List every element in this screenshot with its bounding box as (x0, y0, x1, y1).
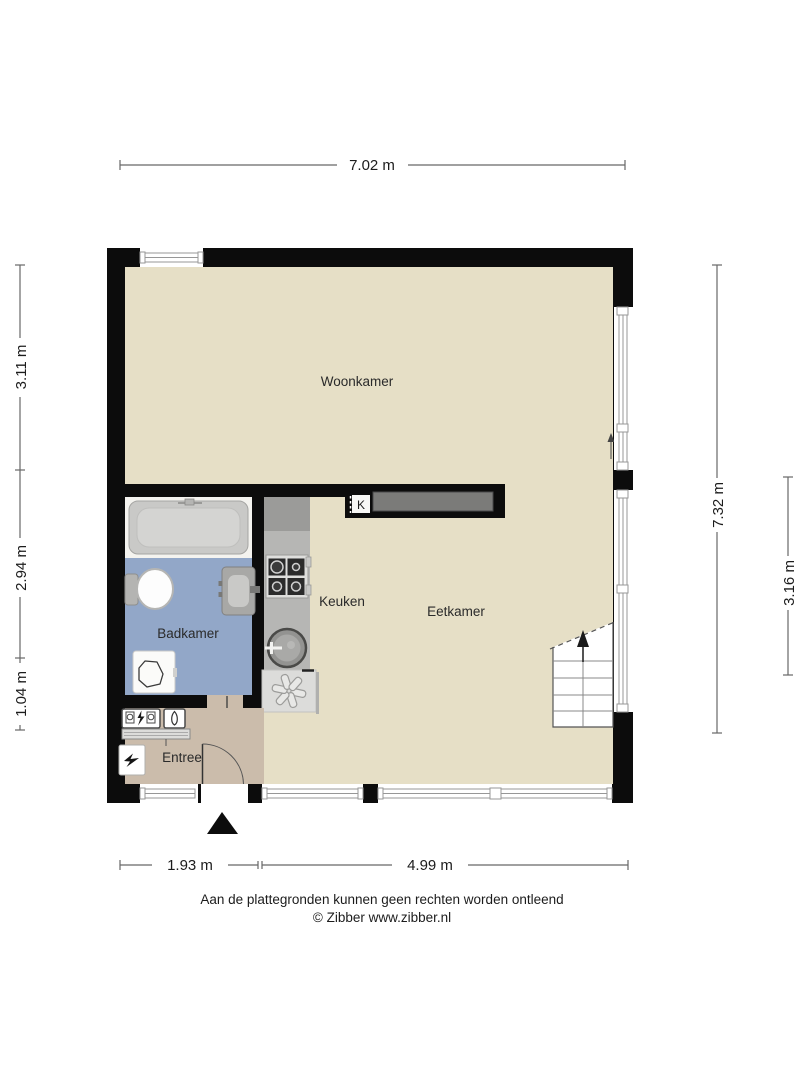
entree-room: Entree (119, 708, 264, 784)
dimension-bottom-label-2: 4.99 m (407, 857, 453, 874)
entrance-triangle-icon (207, 812, 238, 834)
electric-meter-icon (122, 709, 160, 728)
dimension-top-label: 7.02 m (349, 157, 395, 174)
window-icon-bottom-left (140, 784, 198, 803)
washbasin-icon (219, 567, 261, 615)
entree-label: Entree (162, 750, 202, 765)
dimension-bottom: 1.93 m 4.99 m (120, 857, 628, 874)
washing-machine-icon (133, 651, 177, 693)
dimension-right-label-1: 7.32 m (710, 482, 727, 528)
woonkamer-label: Woonkamer (321, 374, 394, 389)
doorbell-icon (119, 745, 145, 775)
floorplan-canvas: 7.02 m 3.11 m 2.94 m 1.04 m 7.32 m 3.16 … (0, 0, 809, 1080)
keuken-label: Keuken (319, 594, 365, 609)
dimension-right-label-2: 3.16 m (781, 560, 798, 606)
gas-meter-icon (164, 709, 185, 728)
window-icon-top (140, 248, 203, 267)
footer-copyright: © Zibber www.zibber.nl (313, 910, 451, 925)
toilet-icon (125, 569, 173, 609)
boiler-vent-icon (262, 670, 319, 714)
window-icon-bottom-middle (262, 784, 363, 803)
closet-marker-label: K (357, 498, 365, 512)
window-icon-bottom-right (378, 784, 612, 803)
badkamer-label: Badkamer (157, 626, 219, 641)
dimension-left-label-3: 1.04 m (13, 671, 30, 717)
stove-icon (266, 555, 311, 598)
dimension-bottom-label-1: 1.93 m (167, 857, 213, 874)
window-icon-right-lower (614, 490, 633, 712)
floorplan-page: 7.02 m 3.11 m 2.94 m 1.04 m 7.32 m 3.16 … (0, 0, 809, 1080)
front-door-opening (201, 784, 248, 803)
wall-counter-icon (373, 492, 493, 511)
eetkamer-label: Eetkamer (427, 604, 485, 619)
dimension-top: 7.02 m (120, 157, 625, 174)
dimension-left-label-1: 3.11 m (13, 345, 30, 390)
dimension-left-label-2: 2.94 m (13, 545, 30, 591)
dimension-left: 3.11 m 2.94 m 1.04 m (13, 265, 30, 730)
footer-disclaimer: Aan de plattegronden kunnen geen rechten… (200, 892, 563, 907)
window-icon-right-upper (614, 307, 633, 470)
dimension-right: 7.32 m 3.16 m (710, 265, 798, 733)
bathtub-icon (129, 499, 248, 554)
